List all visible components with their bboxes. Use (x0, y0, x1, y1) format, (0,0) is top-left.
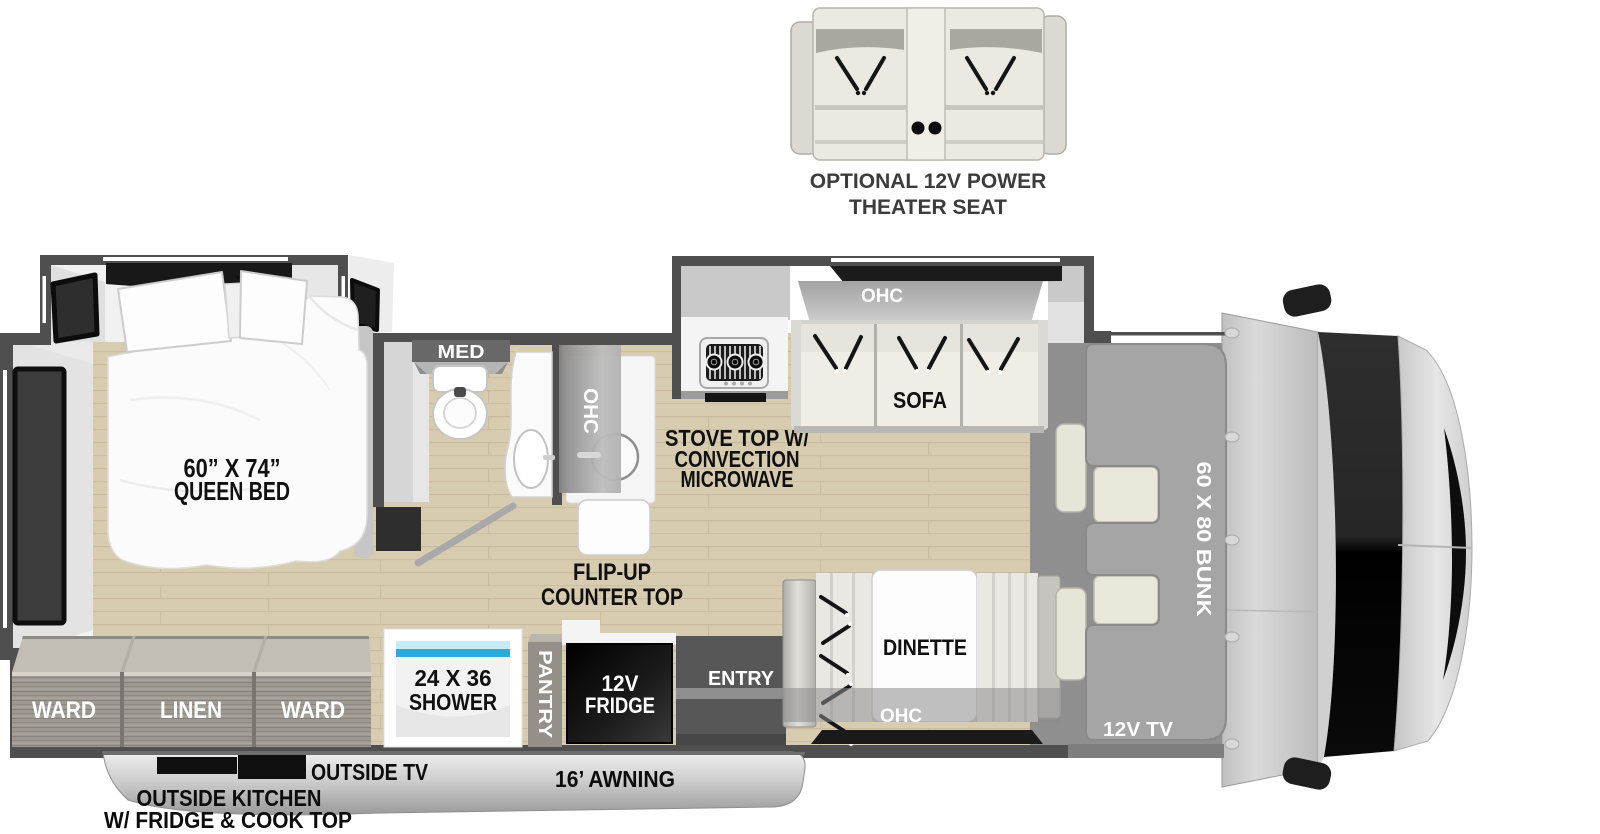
svg-text:ENTRY: ENTRY (708, 668, 775, 690)
svg-text:16’ AWNING: 16’ AWNING (555, 766, 675, 792)
svg-text:24 X 36: 24 X 36 (415, 665, 492, 691)
svg-text:PANTRY: PANTRY (535, 650, 555, 738)
svg-text:FLIP-UP: FLIP-UP (573, 559, 651, 586)
svg-text:OHC: OHC (579, 388, 601, 434)
svg-text:12V TV: 12V TV (1103, 719, 1174, 741)
svg-text:WARD: WARD (281, 697, 345, 724)
svg-text:60 X 80 BUNK: 60 X 80 BUNK (1192, 462, 1214, 618)
svg-text:SOFA: SOFA (893, 387, 947, 413)
svg-text:OHC: OHC (880, 706, 922, 727)
svg-text:W/ FRIDGE & COOK TOP: W/ FRIDGE & COOK TOP (104, 807, 352, 833)
svg-text:MICROWAVE: MICROWAVE (681, 466, 794, 492)
svg-text:THEATER SEAT: THEATER SEAT (849, 196, 1007, 219)
svg-text:COUNTER TOP: COUNTER TOP (541, 584, 683, 611)
svg-text:DINETTE: DINETTE (883, 635, 967, 660)
svg-text:MED: MED (438, 342, 485, 362)
svg-text:QUEEN BED: QUEEN BED (174, 476, 290, 506)
svg-text:OUTSIDE TV: OUTSIDE TV (311, 759, 429, 785)
svg-text:LINEN: LINEN (160, 697, 222, 724)
svg-text:OPTIONAL 12V POWER: OPTIONAL 12V POWER (810, 170, 1047, 193)
svg-text:WARD: WARD (32, 697, 96, 724)
svg-text:OHC: OHC (861, 286, 903, 307)
svg-text:SHOWER: SHOWER (409, 689, 497, 715)
svg-text:FRIDGE: FRIDGE (585, 693, 655, 718)
